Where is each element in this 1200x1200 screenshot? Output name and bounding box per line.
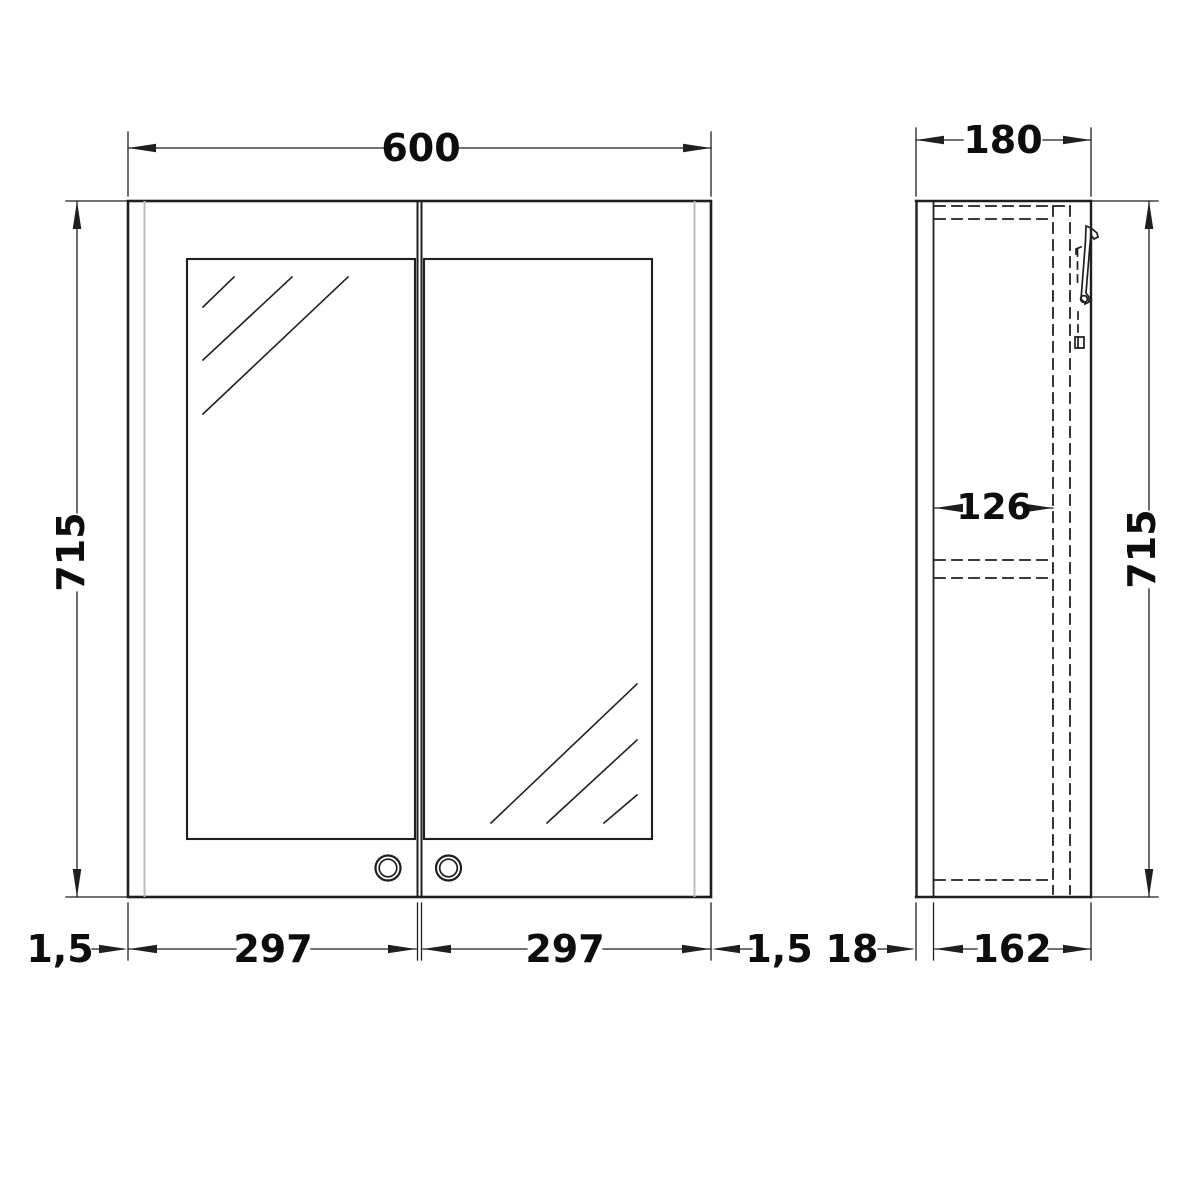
front-cabinet-outline <box>128 201 711 897</box>
left-mirror-glint-lines <box>203 277 348 414</box>
door-knob-right <box>436 856 461 881</box>
drawing-linework <box>0 0 1200 1200</box>
door-knob-left <box>376 856 401 881</box>
side-view <box>916 201 1098 897</box>
wall-hanger-bracket-icon <box>1075 226 1098 348</box>
front-view-dimensions <box>66 132 752 960</box>
dim-label-side-internal-depth: 126 <box>944 488 1044 528</box>
front-left-mirror <box>187 259 415 839</box>
front-right-mirror <box>424 259 652 839</box>
dim-label-front-left-gap: 1,5 <box>10 929 110 969</box>
side-view-dimensions <box>878 128 1158 960</box>
dim-label-front-left-door: 297 <box>223 929 323 969</box>
side-hidden-top-panel <box>935 206 1070 219</box>
dim-label-side-carcass-depth: 162 <box>962 929 1062 969</box>
dim-label-front-width: 600 <box>371 128 471 168</box>
side-hidden-shelf <box>935 560 1053 578</box>
technical-drawing-cabinet: 600 715 1,5 297 297 1,5 180 126 715 18 1… <box>0 0 1200 1200</box>
dim-label-front-height: 715 <box>51 502 91 602</box>
dim-label-front-right-door: 297 <box>515 929 615 969</box>
right-mirror-glint-lines <box>491 684 637 823</box>
dim-label-side-depth: 180 <box>953 120 1053 160</box>
dim-label-side-door-thickness: 18 <box>802 929 902 969</box>
dim-label-side-height: 715 <box>1122 499 1162 599</box>
side-hidden-back-panel-lines <box>1053 206 1070 894</box>
front-view <box>128 201 711 897</box>
front-bottom-extension-lines <box>128 903 711 960</box>
